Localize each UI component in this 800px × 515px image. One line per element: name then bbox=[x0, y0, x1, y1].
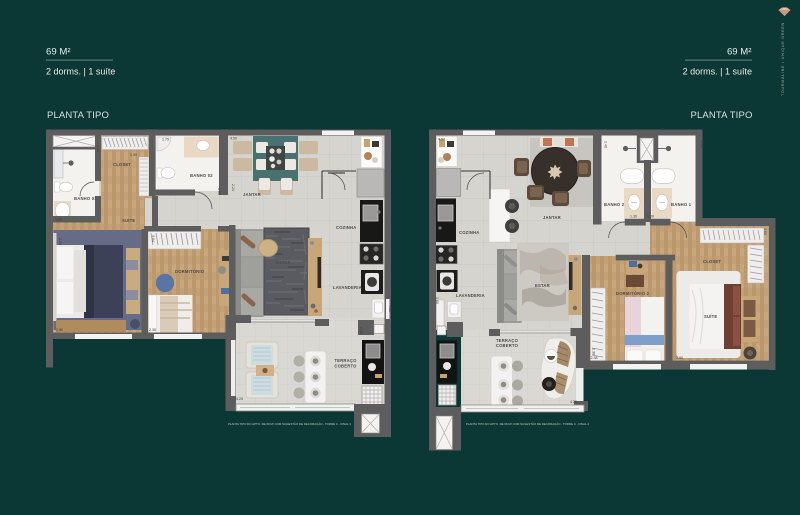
svg-text:69 M²: 69 M² bbox=[727, 47, 752, 58]
svg-text:JANTAR: JANTAR bbox=[543, 215, 561, 220]
svg-text:COBERTO: COBERTO bbox=[496, 343, 519, 348]
svg-text:DORMITÓRIO 2: DORMITÓRIO 2 bbox=[616, 291, 650, 296]
svg-text:DORMITÓRIO: DORMITÓRIO bbox=[175, 269, 205, 274]
svg-text:PLANTA TIPO DO APTO. DE 69 M²: PLANTA TIPO DO APTO. DE 69 M² COM SUGEST… bbox=[228, 421, 351, 426]
svg-text:ESTAR: ESTAR bbox=[276, 260, 291, 265]
svg-text:2.38: 2.38 bbox=[592, 348, 596, 355]
svg-text:2.43: 2.43 bbox=[359, 327, 363, 334]
svg-text:2.40: 2.40 bbox=[700, 141, 704, 148]
svg-text:2.80: 2.80 bbox=[56, 328, 63, 332]
svg-text:LAVANDERIA: LAVANDERIA bbox=[456, 293, 485, 298]
svg-text:COZINHA: COZINHA bbox=[459, 230, 479, 235]
svg-text:4.05: 4.05 bbox=[763, 228, 767, 235]
svg-text:4.25: 4.25 bbox=[570, 400, 577, 404]
svg-text:69 M²: 69 M² bbox=[46, 47, 71, 58]
svg-text:1.75: 1.75 bbox=[162, 138, 169, 142]
svg-text:SUÍTE: SUÍTE bbox=[704, 314, 717, 319]
svg-text:PLANTA TIPO: PLANTA TIPO bbox=[47, 110, 109, 121]
svg-text:2.20: 2.20 bbox=[96, 145, 100, 152]
svg-text:4.30: 4.30 bbox=[388, 305, 392, 312]
svg-text:4.57: 4.57 bbox=[438, 138, 445, 142]
svg-text:JANTAR: JANTAR bbox=[243, 192, 261, 197]
svg-text:1.90: 1.90 bbox=[130, 153, 137, 157]
svg-text:SUITE: SUITE bbox=[122, 218, 135, 223]
svg-text:ESTAR: ESTAR bbox=[535, 283, 550, 288]
svg-text:4.25: 4.25 bbox=[236, 397, 243, 401]
svg-text:BANHO 02: BANHO 02 bbox=[190, 173, 213, 178]
svg-text:1.68: 1.68 bbox=[217, 188, 221, 195]
svg-text:4.50: 4.50 bbox=[230, 137, 237, 141]
svg-text:2 dorms. | 1 suíte: 2 dorms. | 1 suíte bbox=[46, 67, 115, 77]
svg-text:COBERTO: COBERTO bbox=[334, 364, 357, 369]
svg-text:TOURMALINE • UNIQUE GREEN: TOURMALINE • UNIQUE GREEN bbox=[781, 22, 785, 96]
svg-text:1.30: 1.30 bbox=[630, 215, 637, 219]
svg-text:TERRAÇO: TERRAÇO bbox=[334, 358, 357, 363]
svg-text:2.40: 2.40 bbox=[604, 141, 608, 148]
svg-text:BANHO 2: BANHO 2 bbox=[604, 202, 625, 207]
svg-text:PLANTA TIPO DO APTO. DE 69 M²: PLANTA TIPO DO APTO. DE 69 M² COM SUGEST… bbox=[466, 421, 589, 426]
svg-text:CLOSET: CLOSET bbox=[113, 162, 131, 167]
svg-text:3.04: 3.04 bbox=[151, 235, 155, 242]
svg-text:2.38: 2.38 bbox=[149, 328, 156, 332]
svg-text:BANHO 1: BANHO 1 bbox=[671, 202, 692, 207]
svg-text:LAVANDERIA: LAVANDERIA bbox=[333, 285, 362, 290]
svg-text:BANHO 01: BANHO 01 bbox=[74, 196, 97, 201]
svg-text:PLANTA TIPO: PLANTA TIPO bbox=[690, 110, 752, 121]
svg-text:1.60: 1.60 bbox=[435, 297, 439, 304]
svg-text:COZINHA: COZINHA bbox=[336, 225, 356, 230]
svg-text:2 dorms. | 1 suíte: 2 dorms. | 1 suíte bbox=[683, 67, 752, 77]
svg-text:3.00: 3.00 bbox=[58, 238, 62, 245]
svg-text:1.30: 1.30 bbox=[647, 215, 654, 219]
svg-text:2.24: 2.24 bbox=[231, 184, 235, 191]
svg-text:CLOSET: CLOSET bbox=[703, 259, 721, 264]
svg-text:2.38: 2.38 bbox=[591, 356, 598, 360]
svg-text:2.80: 2.80 bbox=[676, 356, 683, 360]
svg-text:1.30: 1.30 bbox=[55, 218, 62, 222]
